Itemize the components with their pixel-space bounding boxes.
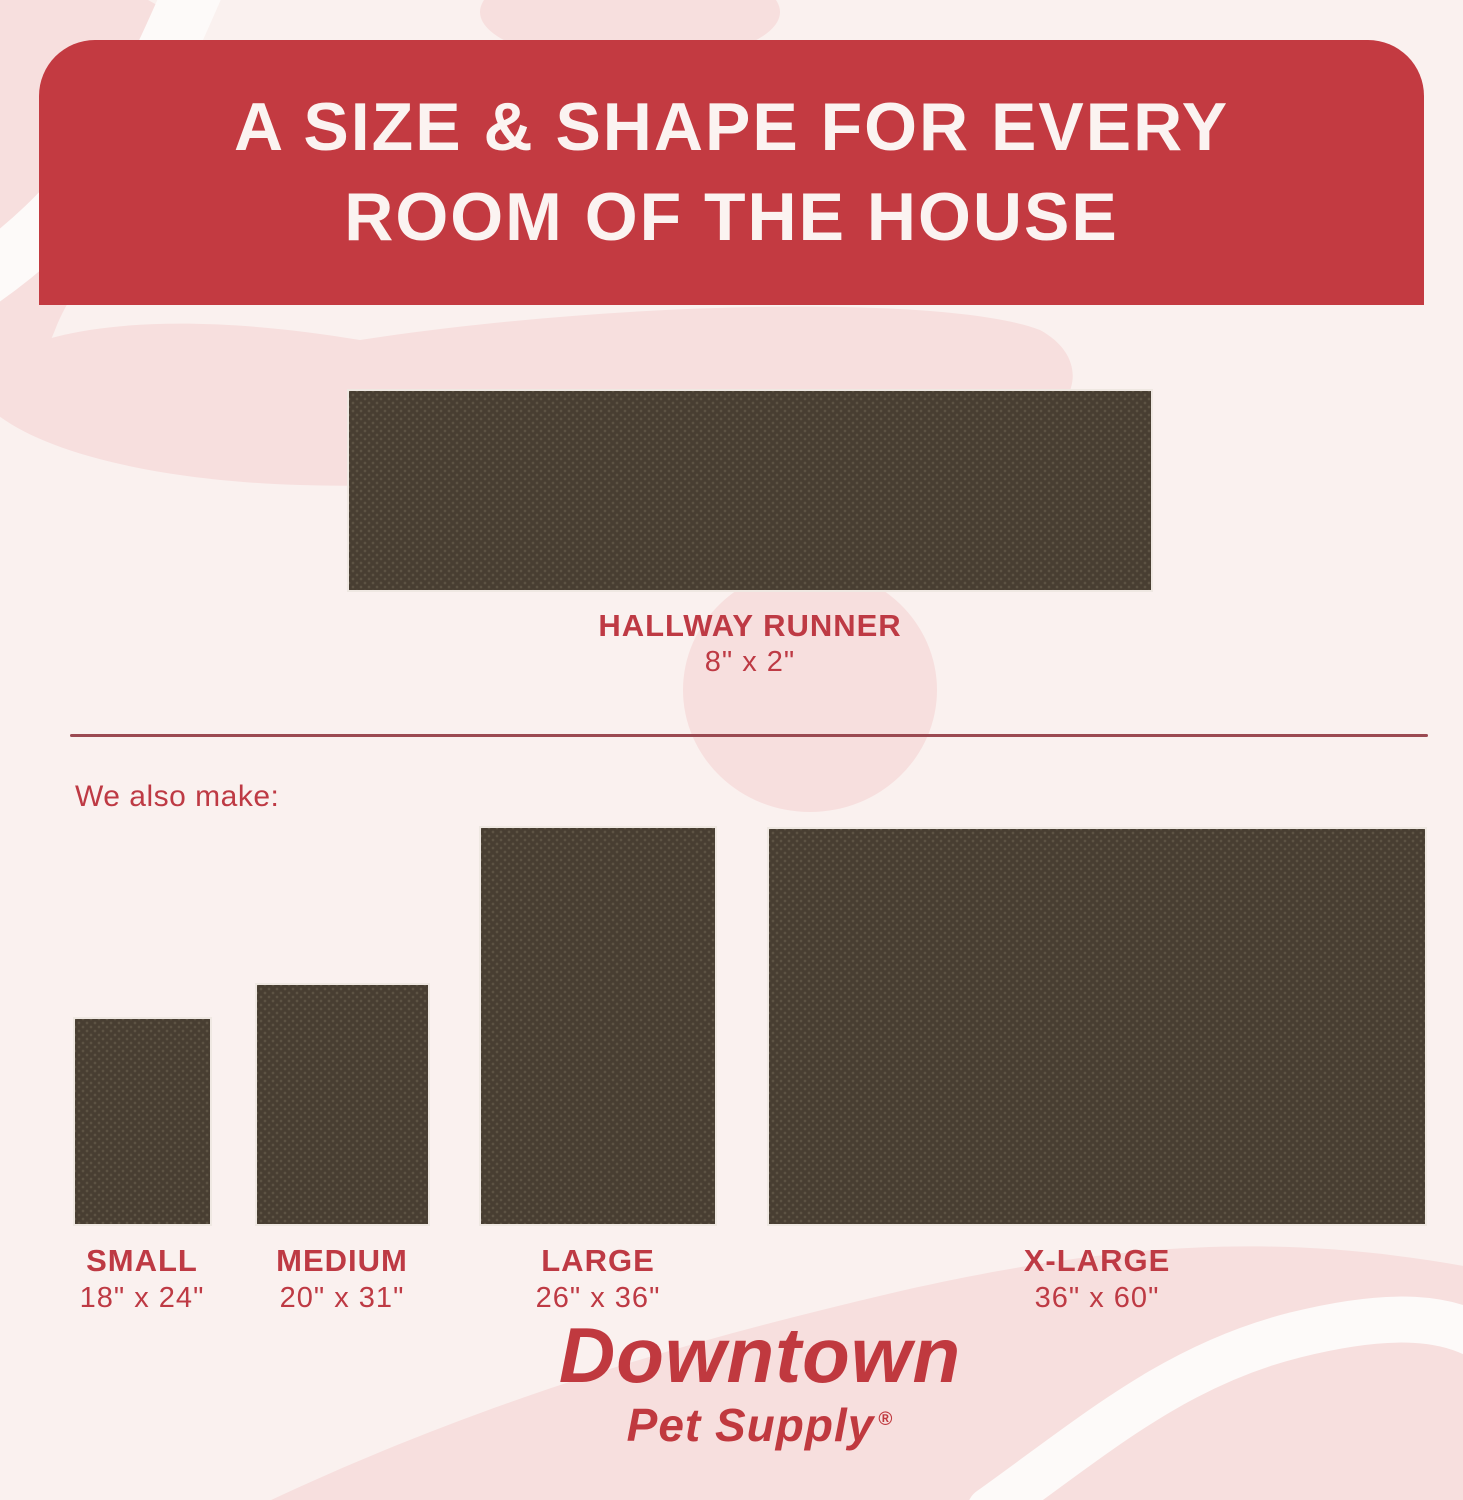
brand-name: Downtown [457, 1316, 1063, 1394]
mat-hallway-runner [347, 389, 1153, 592]
medium-size: 20" x 31" [222, 1282, 462, 1315]
page-title-line-1: A SIZE & SHAPE FOR EVERY [234, 83, 1229, 173]
infographic-canvas: A SIZE & SHAPE FOR EVERY ROOM OF THE HOU… [0, 0, 1463, 1500]
section-divider [70, 734, 1428, 737]
page-title-line-2: ROOM OF THE HOUSE [344, 173, 1118, 263]
brand-subname: Pet Supply® [457, 1398, 1063, 1452]
mat-large [479, 826, 717, 1226]
hallway-runner-name: HALLWAY RUNNER [347, 608, 1153, 644]
hallway-runner-size: 8" x 2" [347, 646, 1153, 679]
middle-blob [683, 568, 937, 812]
mat-medium [255, 983, 430, 1226]
brand-logo: Downtown Pet Supply® [457, 1316, 1063, 1452]
registered-mark: ® [878, 1409, 893, 1430]
x-large-size: 36" x 60" [947, 1282, 1247, 1315]
medium-name: MEDIUM [222, 1243, 462, 1279]
x-large-name: X-LARGE [947, 1243, 1247, 1279]
mat-x-large [767, 827, 1427, 1226]
brand-subname-text: Pet Supply [627, 1399, 875, 1451]
mat-small [73, 1017, 212, 1226]
large-name: LARGE [478, 1243, 718, 1279]
also-make-label: We also make: [75, 780, 279, 814]
header-banner: A SIZE & SHAPE FOR EVERY ROOM OF THE HOU… [39, 40, 1424, 305]
